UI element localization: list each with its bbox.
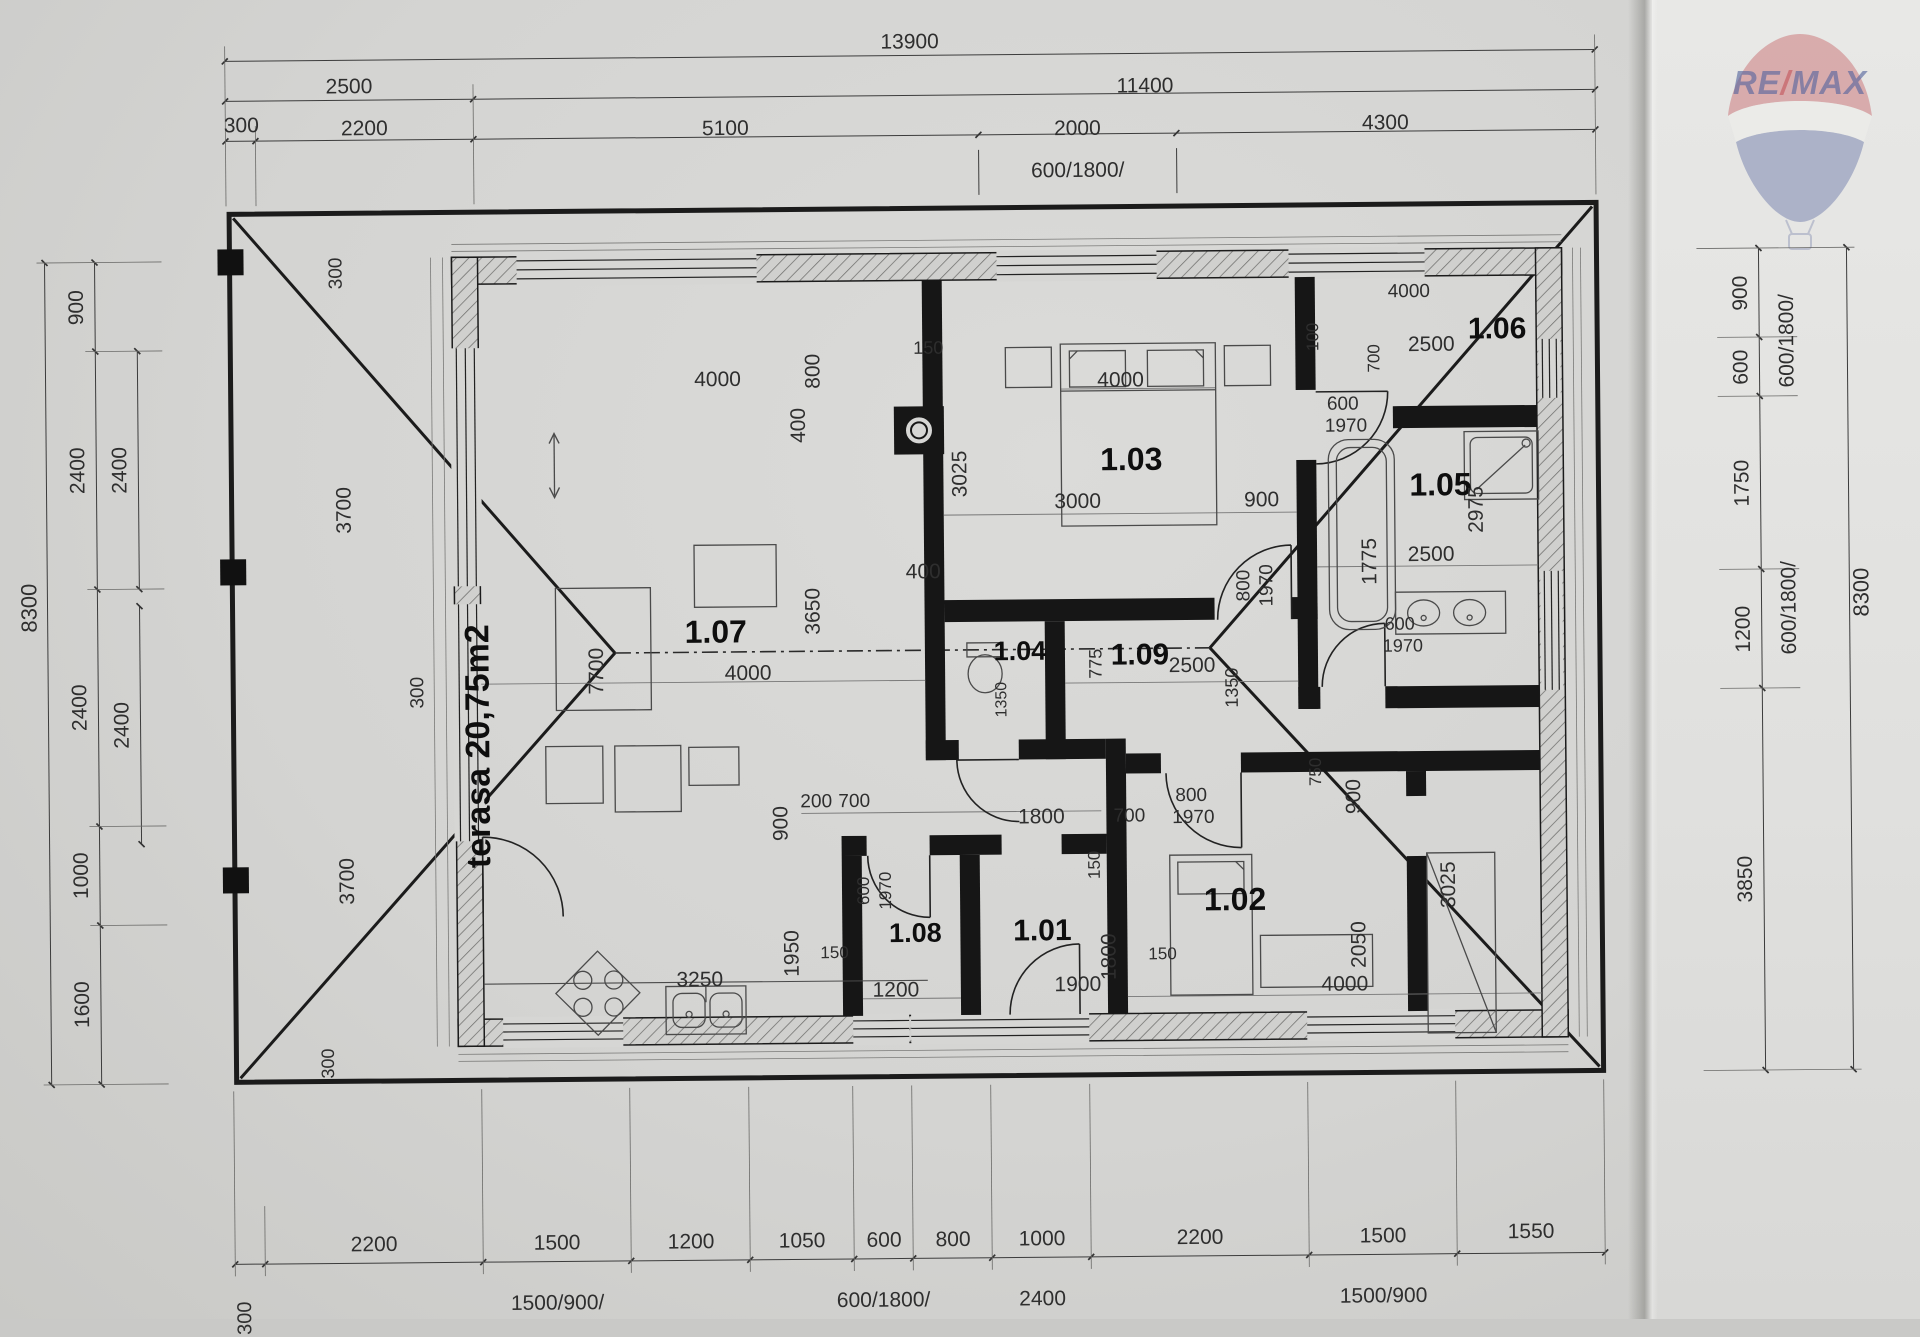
dim-label: 2000 (1054, 117, 1101, 141)
dim-label: 8300 (16, 584, 42, 633)
dim-label: 11400 (1116, 74, 1173, 98)
dim-label: 1970 (1325, 415, 1367, 437)
dim-label: 2400 (66, 447, 90, 494)
room-label-1-09: 1.09 (1111, 638, 1170, 673)
dim-label: 600/1800/ (837, 1288, 931, 1313)
dim-label: 700 (1113, 805, 1145, 827)
dim-label: 1350 (1222, 668, 1243, 708)
dim-label: 4000 (1321, 972, 1368, 996)
dim-label: 1800 (1018, 805, 1065, 829)
dim-label: 1350 (993, 682, 1011, 718)
dim-label: 600 (866, 1229, 901, 1253)
room-label-1-08: 1.08 (889, 918, 942, 949)
dim-label: 600/1800/ (1031, 159, 1125, 184)
room-label-1-07: 1.07 (684, 613, 747, 651)
dim-label: 1000 (1019, 1227, 1066, 1251)
dim-label: 800 (1233, 570, 1255, 602)
dim-label: 900 (1244, 488, 1279, 512)
dim-label: 13900 (880, 30, 939, 55)
dim-label: 1800 (1097, 933, 1121, 980)
dim-label: 3850 (1734, 856, 1758, 903)
dim-label: 3650 (801, 588, 825, 635)
dim-label: 300 (407, 677, 429, 709)
dim-label: 1775 (1358, 538, 1382, 585)
dim-label: 900 (65, 290, 89, 325)
dim-label: 1970 (1383, 635, 1423, 656)
dim-label: 1500/900 (1340, 1284, 1428, 1309)
dim-label: 2500 (326, 75, 373, 99)
dim-label: 600 (1729, 350, 1753, 385)
dim-label: 150 (820, 943, 849, 963)
dim-label: 1600 (71, 981, 95, 1028)
dim-label: 1200 (668, 1230, 715, 1254)
dim-label: 4000 (1097, 368, 1144, 392)
dim-label: 150 (1148, 944, 1177, 964)
room-label-1-06: 1.06 (1468, 312, 1527, 347)
dim-label: 600 (854, 877, 874, 906)
dim-label: 800 (935, 1228, 970, 1252)
dim-label: 3000 (1054, 490, 1101, 514)
dim-label: 100 (1303, 323, 1323, 352)
dim-label: 2500 (1169, 654, 1216, 678)
dim-label: 775 (1085, 649, 1106, 679)
dim-label: 300 (325, 257, 347, 289)
dim-label: 1900 (1054, 973, 1101, 997)
dim-label: 3700 (336, 858, 360, 905)
dim-label: 2200 (1177, 1226, 1224, 1250)
dim-label: 1970 (876, 872, 896, 910)
dim-label: 2200 (341, 117, 388, 141)
dim-label: 300 (224, 114, 259, 138)
dim-label: 700 (1364, 344, 1384, 373)
dim-label: 2200 (351, 1233, 398, 1257)
dim-label: 1950 (780, 930, 804, 977)
dim-label: 1000 (70, 852, 94, 899)
dim-label: 1050 (779, 1229, 826, 1253)
dim-label: 7700 (585, 648, 609, 695)
dim-label: 200 (800, 791, 832, 813)
room-label-1-05: 1.05 (1409, 466, 1472, 504)
dim-label: 1970 (1256, 564, 1278, 606)
dim-label: 4300 (1362, 111, 1409, 135)
dim-label: 600/1800/ (1777, 561, 1802, 655)
dim-label: 1750 (1730, 460, 1754, 507)
dim-label: 900 (1729, 276, 1753, 311)
dim-label: 3025 (948, 451, 972, 498)
floorplan-drawing-area: 139002500114003002200510020004300600/180… (0, 0, 1920, 1327)
dim-label: 400 (906, 560, 941, 584)
dim-label: 400 (787, 408, 811, 443)
dim-label: 8300 (1848, 568, 1874, 617)
dim-label: 1500 (534, 1231, 581, 1255)
dim-label: 900 (769, 806, 793, 841)
dimension-and-room-labels: 139002500114003002200510020004300600/180… (0, 0, 1920, 1327)
dim-label: 2400 (108, 447, 132, 494)
dim-label: 750 (1306, 758, 1326, 787)
dim-label: 2400 (110, 702, 134, 749)
dim-label: 300 (234, 1301, 257, 1335)
room-label-1-04: 1.04 (994, 636, 1047, 667)
dim-label: 2500 (1408, 543, 1455, 567)
dim-label: 3025 (1437, 861, 1461, 908)
dim-label: 600 (1327, 394, 1359, 416)
dim-label: 1500 (1360, 1224, 1407, 1248)
dim-label: 4000 (1388, 281, 1430, 303)
dim-label: 800 (801, 354, 825, 389)
dim-label: 300 (318, 1048, 339, 1078)
dim-label: 150 (1085, 851, 1105, 880)
dim-label: 3700 (332, 487, 356, 534)
dim-label: 150 (913, 338, 943, 359)
dim-label: 4000 (694, 368, 741, 392)
dim-label: 2050 (1347, 921, 1371, 968)
dim-label: 600/1800/ (1775, 294, 1800, 388)
dim-label: 800 (1175, 785, 1207, 807)
dim-label: 1500/900/ (511, 1291, 605, 1316)
scanned-floorplan-page: RE/MAX (0, 0, 1920, 1319)
room-label-1-03: 1.03 (1100, 441, 1163, 479)
terrace-label: terasa 20,75m2 (458, 624, 499, 868)
dim-label: 2400 (1019, 1287, 1066, 1311)
dim-label: 900 (1342, 779, 1366, 814)
dim-label: 1970 (1172, 807, 1214, 829)
dim-label: 2975 (1465, 486, 1489, 533)
dim-label: 3250 (676, 968, 723, 992)
room-label-1-01: 1.01 (1013, 914, 1072, 949)
dim-label: 2500 (1408, 333, 1455, 357)
room-label-1-02: 1.02 (1204, 881, 1267, 919)
dim-label: 1550 (1508, 1220, 1555, 1244)
dim-label: 1200 (872, 978, 919, 1002)
dim-label: 2400 (68, 684, 92, 731)
dim-label: 700 (838, 791, 870, 813)
dim-label: 4000 (725, 662, 772, 686)
dim-label: 5100 (702, 117, 749, 141)
dim-label: 600 (1385, 614, 1415, 635)
dim-label: 1200 (1732, 606, 1756, 653)
